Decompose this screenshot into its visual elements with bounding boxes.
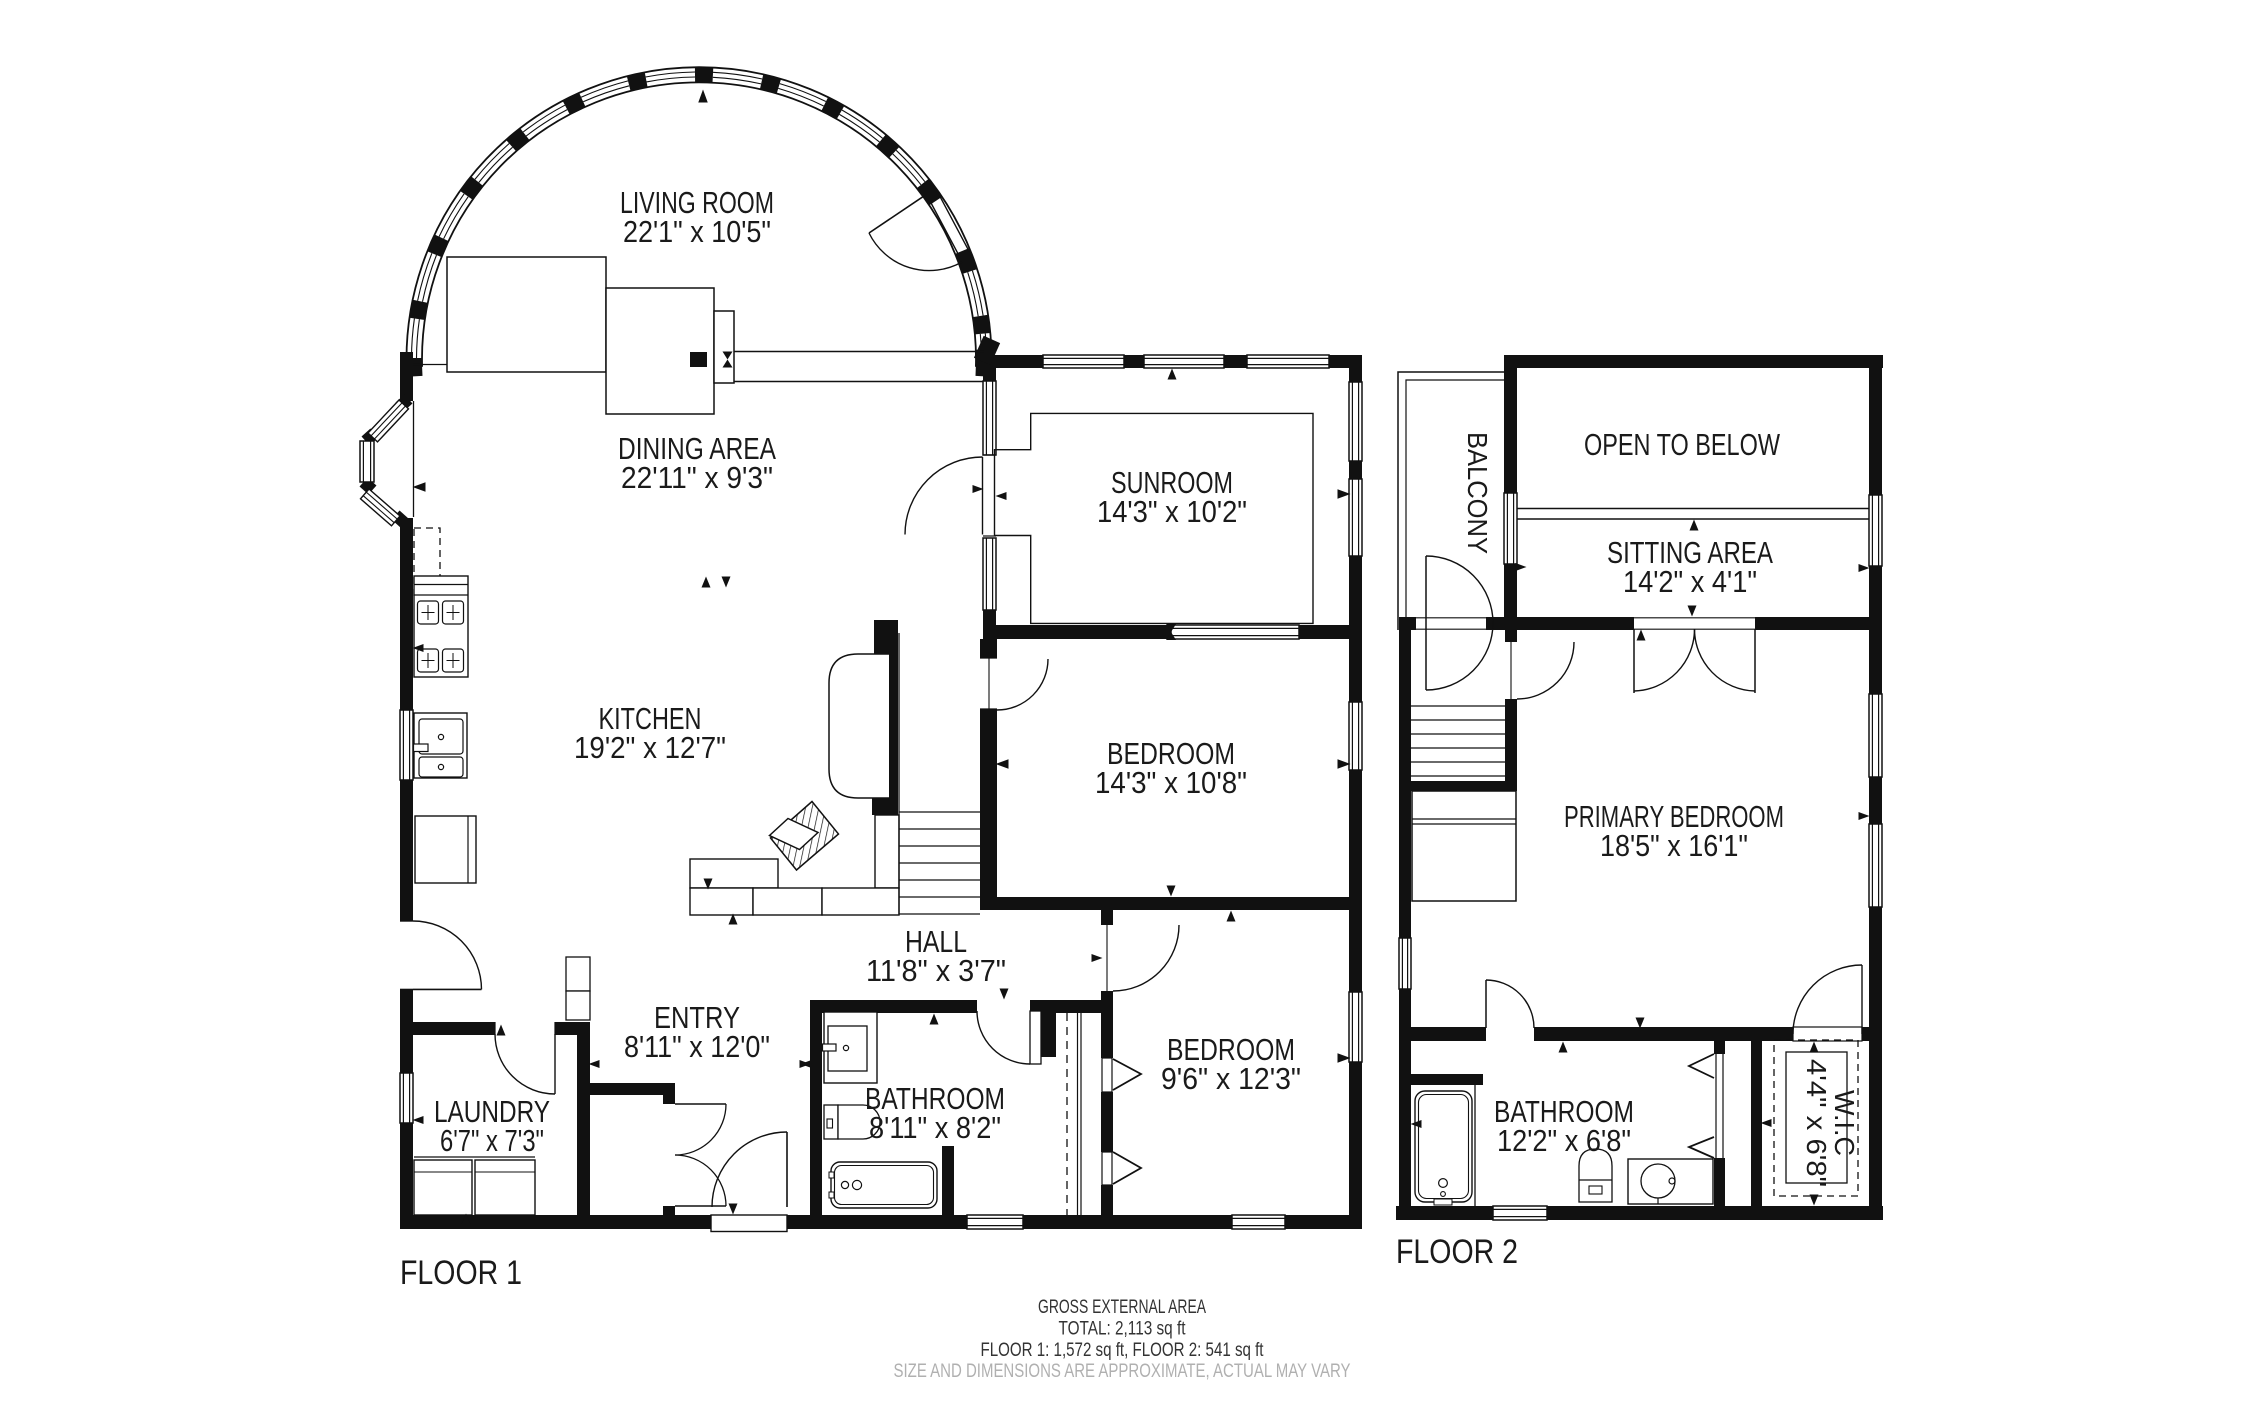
svg-text:22'11" x 9'3": 22'11" x 9'3" <box>621 460 773 495</box>
svg-text:11'8" x 3'7": 11'8" x 3'7" <box>866 953 1006 988</box>
svg-text:14'3" x 10'2": 14'3" x 10'2" <box>1097 494 1247 529</box>
svg-text:BALCONY: BALCONY <box>1462 432 1493 554</box>
svg-text:8'11" x 8'2": 8'11" x 8'2" <box>869 1110 1001 1145</box>
svg-text:W.I.C: W.I.C <box>1829 1090 1860 1156</box>
svg-text:FLOOR 1: 1,572 sq ft, FLOOR 2:: FLOOR 1: 1,572 sq ft, FLOOR 2: 541 sq ft <box>981 1340 1265 1361</box>
svg-text:8'11" x 12'0": 8'11" x 12'0" <box>624 1029 770 1064</box>
svg-text:6'7" x 7'3": 6'7" x 7'3" <box>440 1123 544 1158</box>
svg-text:OPEN TO BELOW: OPEN TO BELOW <box>1584 427 1781 462</box>
svg-text:FLOOR 2: FLOOR 2 <box>1396 1233 1518 1271</box>
svg-text:TOTAL: 2,113 sq ft: TOTAL: 2,113 sq ft <box>1059 1319 1187 1340</box>
svg-text:19'2" x 12'7": 19'2" x 12'7" <box>574 730 726 765</box>
svg-text:14'2" x 4'1": 14'2" x 4'1" <box>1623 564 1757 599</box>
svg-text:SIZE AND DIMENSIONS ARE APPROX: SIZE AND DIMENSIONS ARE APPROXIMATE, ACT… <box>894 1361 1351 1382</box>
svg-text:22'1" x 10'5": 22'1" x 10'5" <box>623 214 771 249</box>
svg-text:9'6" x 12'3": 9'6" x 12'3" <box>1161 1061 1301 1096</box>
svg-text:18'5" x 16'1": 18'5" x 16'1" <box>1600 828 1748 863</box>
svg-text:4'4" x 6'8": 4'4" x 6'8" <box>1801 1059 1832 1187</box>
svg-text:14'3" x 10'8": 14'3" x 10'8" <box>1095 765 1247 800</box>
svg-text:12'2" x 6'8": 12'2" x 6'8" <box>1497 1123 1631 1158</box>
svg-text:FLOOR 1: FLOOR 1 <box>400 1254 522 1292</box>
svg-text:GROSS EXTERNAL AREA: GROSS EXTERNAL AREA <box>1038 1297 1206 1318</box>
